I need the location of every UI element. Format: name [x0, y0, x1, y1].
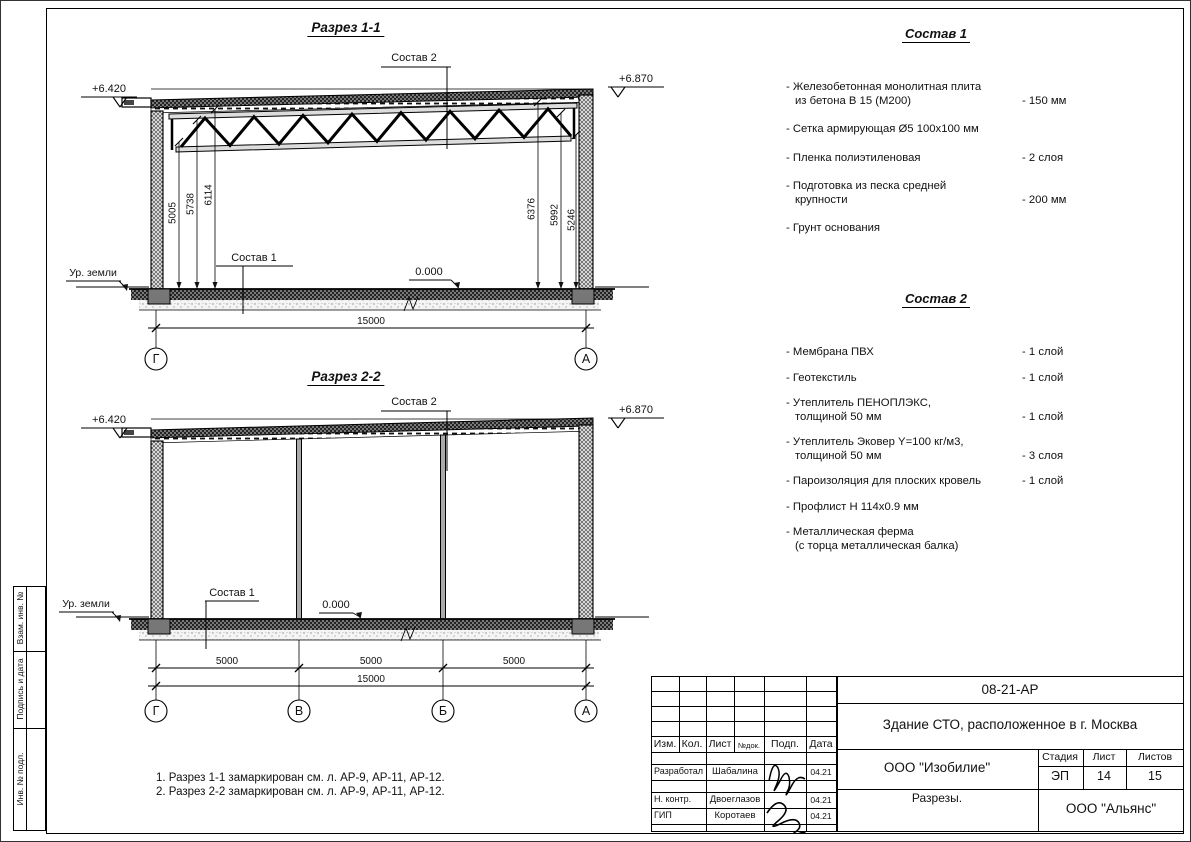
section-1-total-dim: 15000: [357, 316, 385, 327]
sostav2-list: - Мембрана ПВХ - 1 слой - Геотекстиль - …: [786, 346, 1086, 565]
item-text: - Металлическая ферма: [786, 526, 1086, 540]
item-value: - 1 слой: [1022, 372, 1063, 386]
section-2-axis-v: В: [295, 704, 303, 718]
section-1-dim-5992: 5992: [550, 204, 561, 226]
section-1-sostav1-callout: Состав 1: [231, 252, 277, 264]
stamp-line: [836, 749, 1184, 750]
stamp-project-title: Здание СТО, расположенное в г. Москва: [883, 717, 1137, 732]
sostav1-list: - Железобетонная монолитная плита из бет…: [786, 81, 1086, 251]
stamp-sheet-label: Лист: [1093, 751, 1116, 763]
section-2-elevation-right: +6.870: [619, 404, 653, 416]
list-item: - Железобетонная монолитная плита из бет…: [786, 81, 1086, 108]
section-2-axis-g: Г: [153, 704, 160, 718]
stamp-col-kol: Кол.: [682, 738, 703, 750]
list-item: - Профлист Н 114х0.9 мм: [786, 501, 1086, 515]
signature-scribbles: [761, 749, 811, 834]
item-text: - Грунт основания: [786, 222, 1086, 236]
section-1-dim-6114: 6114: [204, 184, 215, 205]
list-item: - Пленка полиэтиленовая - 2 слоя: [786, 152, 1086, 166]
section-1-elevation-right: +6.870: [619, 73, 653, 85]
stamp-contractor: ООО "Альянс": [1066, 801, 1156, 816]
section-1-axis-a: А: [582, 352, 590, 366]
strip-label-vzam: Взам. инв. №: [15, 592, 25, 645]
section-2-zero-level: 0.000: [322, 599, 350, 611]
stamp-company: ООО "Изобилие": [884, 760, 990, 775]
list-item: - Металлическая ферма (с торца металличе…: [786, 526, 1086, 553]
stamp-stage-value: ЭП: [1051, 769, 1069, 783]
item-text: - Сетка армирующая Ø5 100х100 мм: [786, 123, 1086, 137]
stamp-line: [836, 703, 1184, 704]
item-text: - Подготовка из песка средней: [786, 180, 1086, 194]
stamp-line: [1038, 749, 1039, 832]
item-value: - 3 слоя: [1022, 450, 1063, 464]
stamp-line: [836, 676, 838, 832]
section-1-title: Разрез 1-1: [307, 20, 384, 35]
item-text: - Железобетонная монолитная плита: [786, 81, 1086, 95]
section-2-sostav2-callout: Состав 2: [391, 396, 437, 408]
section-1-sostav2-callout: Состав 2: [391, 52, 437, 64]
stamp-line: [651, 691, 836, 692]
note-line: 1. Разрез 1-1 замаркирован см. л. АР-9, …: [156, 771, 445, 785]
section-2-total-dim: 15000: [357, 674, 385, 685]
stamp-col-izm: Изм.: [654, 738, 677, 750]
stamp-role: Н. контр.: [654, 794, 691, 804]
list-item: - Пароизоляция для плоских кровель - 1 с…: [786, 475, 1086, 489]
stamp-drawing-title: Разрезы.: [912, 791, 962, 805]
stamp-sheet-value: 14: [1097, 769, 1111, 783]
section-2-span-3: 5000: [503, 656, 525, 667]
stamp-col-ndok: №док.: [738, 741, 760, 750]
item-value: - 1 слой: [1022, 475, 1063, 489]
stamp-doc-number: 08-21-АР: [981, 682, 1038, 697]
stamp-date: 04.21: [810, 795, 831, 805]
stamp-line: [651, 736, 836, 737]
section-1-dim-6376: 6376: [527, 198, 538, 220]
stamp-line: [651, 706, 836, 707]
section-1-dim-5738: 5738: [186, 193, 197, 215]
signature-1: [769, 765, 805, 794]
drawing-sheet: Разрез 1-1 +6.420 +6.870 Состав 2 Состав…: [0, 0, 1191, 842]
list-item: - Сетка армирующая Ø5 100х100 мм: [786, 123, 1086, 137]
list-item: - Утеплитель ПЕНОПЛЭКС, толщиной 50 мм -…: [786, 397, 1086, 424]
stamp-stage-label: Стадия: [1042, 751, 1078, 763]
list-item: - Мембрана ПВХ - 1 слой: [786, 346, 1086, 360]
stamp-sheets-label: Листов: [1138, 751, 1172, 763]
stamp-date: 04.21: [810, 811, 831, 821]
stamp-line: [836, 789, 1184, 790]
item-text: - Профлист Н 114х0.9 мм: [786, 501, 1086, 515]
item-value: - 2 слоя: [1022, 152, 1063, 166]
item-text: - Утеплитель Эковер Y=100 кг/м3,: [786, 436, 1086, 450]
stamp-name: Шабалина: [712, 766, 758, 777]
section-1-elevation-left: +6.420: [92, 83, 126, 95]
stamp-line: [1126, 749, 1127, 789]
list-item: - Грунт основания: [786, 222, 1086, 236]
item-value: - 200 мм: [1022, 194, 1066, 208]
section-2-span-2: 5000: [360, 656, 382, 667]
strip-divider: [26, 586, 27, 831]
item-text: (с торца металлическая балка): [786, 540, 1086, 554]
item-text: - Утеплитель ПЕНОПЛЭКС,: [786, 397, 1086, 411]
section-2-sostav1-callout: Состав 1: [209, 587, 255, 599]
item-value: - 1 слой: [1022, 411, 1063, 425]
stamp-role: ГИП: [654, 810, 672, 820]
stamp-col-data: Дата: [809, 738, 832, 750]
section-2-axis-a: А: [582, 704, 590, 718]
stamp-role: Разработал: [654, 766, 703, 776]
stamp-name: Двоеглазов: [710, 794, 761, 805]
list-item: - Подготовка из песка средней крупности …: [786, 180, 1086, 207]
strip-divider: [13, 651, 46, 652]
strip-divider: [13, 728, 46, 729]
note-line: 2. Разрез 2-2 замаркирован см. л. АР-9, …: [156, 785, 445, 799]
section-1-axis-g: Г: [153, 352, 160, 366]
sheet-notes: 1. Разрез 1-1 замаркирован см. л. АР-9, …: [156, 771, 445, 799]
stamp-line: [1083, 749, 1084, 789]
sostav2-title: Состав 2: [902, 291, 970, 306]
signature-2: [767, 803, 805, 834]
list-item: - Геотекстиль - 1 слой: [786, 372, 1086, 386]
stamp-sheets-value: 15: [1148, 769, 1162, 783]
strip-label-inv: Инв. № подл.: [15, 753, 25, 806]
item-value: - 150 мм: [1022, 95, 1066, 109]
section-2-axis-b: Б: [439, 704, 447, 718]
section-1-zero-level: 0.000: [415, 266, 443, 278]
section-1-ground-label: Ур. земли: [69, 267, 117, 279]
stamp-line: [651, 721, 836, 722]
section-1-dim-5246: 5246: [567, 209, 578, 231]
item-value: - 1 слой: [1022, 346, 1063, 360]
list-item: - Утеплитель Эковер Y=100 кг/м3, толщино…: [786, 436, 1086, 463]
section-2-span-1: 5000: [216, 656, 238, 667]
stamp-col-list: Лист: [709, 738, 732, 750]
section-2-title: Разрез 2-2: [307, 369, 384, 384]
stamp-date: 04.21: [810, 767, 831, 777]
stamp-line: [1038, 766, 1184, 767]
stamp-name: Коротаев: [714, 810, 755, 821]
section-2-elevation-left: +6.420: [92, 414, 126, 426]
section-2-ground-label: Ур. земли: [62, 598, 110, 610]
stamp-line: [679, 676, 680, 752]
stamp-line: [734, 676, 735, 752]
section-1-dim-5005: 5005: [168, 202, 179, 224]
strip-label-podpis: Подпись и дата: [15, 658, 25, 719]
sostav1-title: Состав 1: [902, 26, 970, 41]
